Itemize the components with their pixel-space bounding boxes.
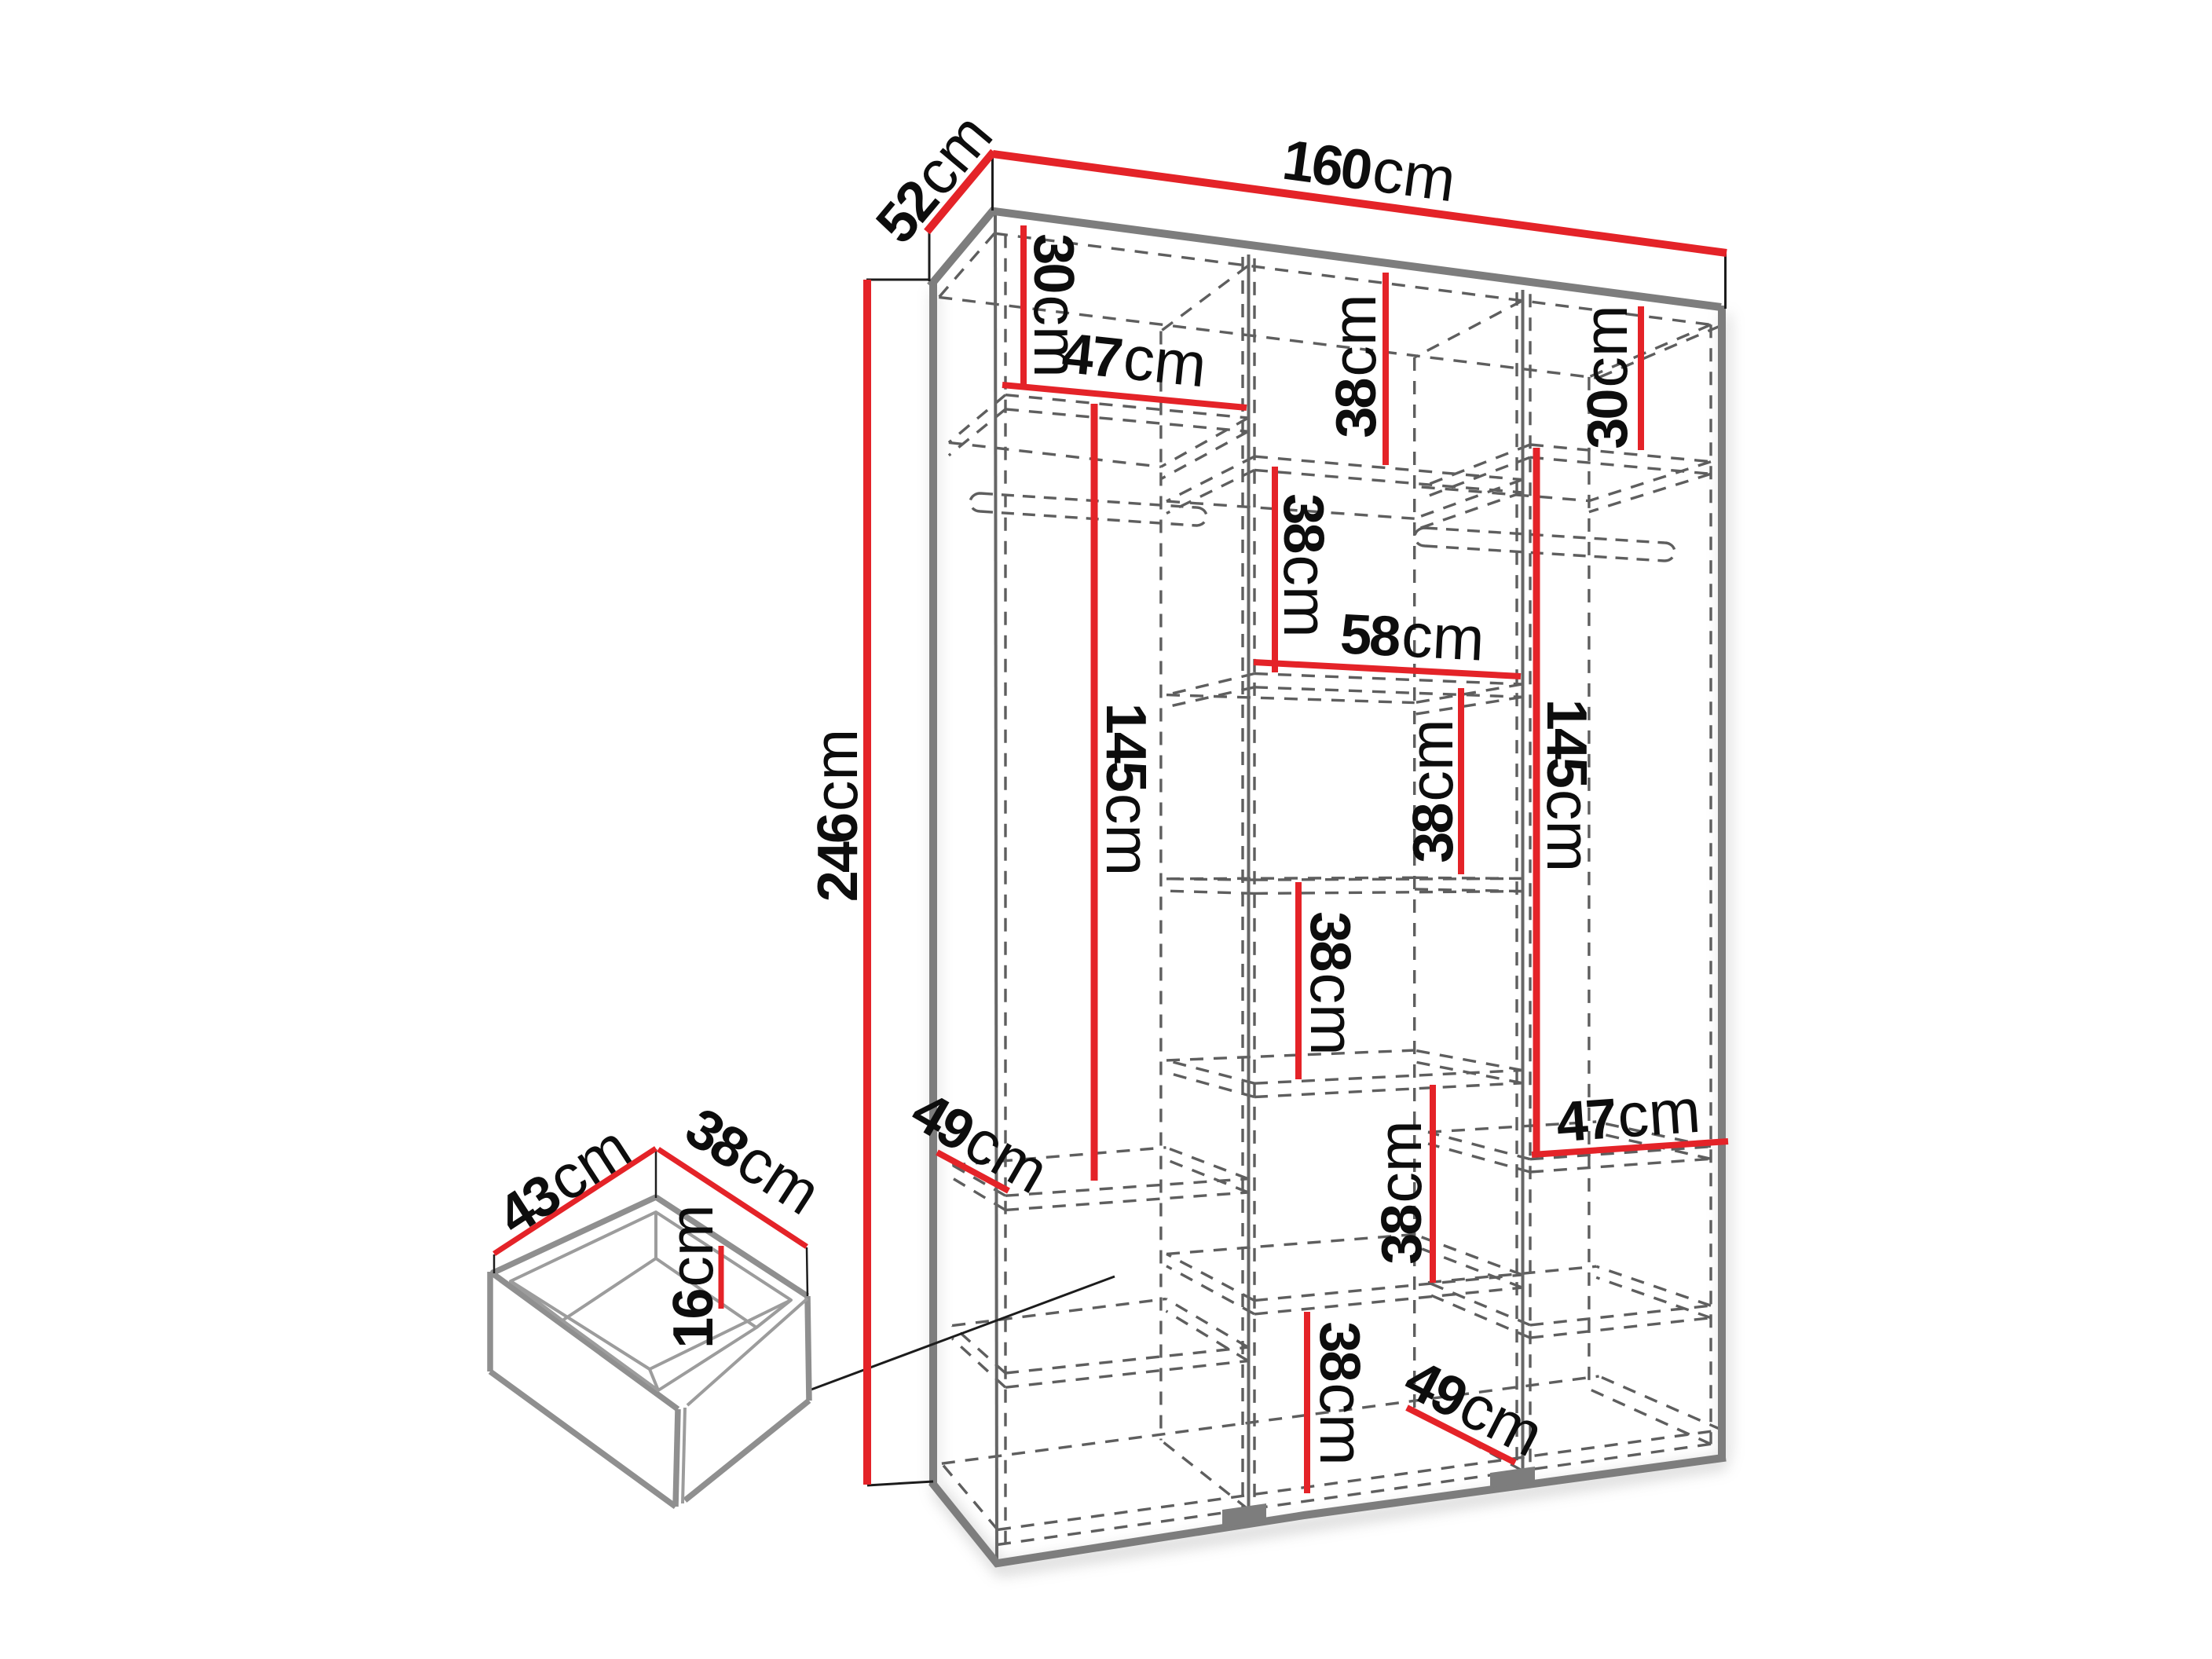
svg-text:145cm: 145cm <box>1534 699 1604 872</box>
svg-text:38cm: 38cm <box>1364 1120 1434 1264</box>
svg-text:38cm: 38cm <box>1396 719 1466 862</box>
svg-text:38cm: 38cm <box>1298 911 1368 1055</box>
svg-text:58cm: 58cm <box>1339 596 1486 673</box>
svg-text:38cm: 38cm <box>1271 493 1341 637</box>
svg-text:30cm: 30cm <box>1570 305 1640 449</box>
svg-text:16cm: 16cm <box>656 1204 726 1348</box>
svg-text:145cm: 145cm <box>1093 703 1163 876</box>
svg-text:246cm: 246cm <box>800 729 870 902</box>
svg-text:38cm: 38cm <box>1307 1321 1377 1465</box>
svg-text:38cm: 38cm <box>1319 294 1389 438</box>
